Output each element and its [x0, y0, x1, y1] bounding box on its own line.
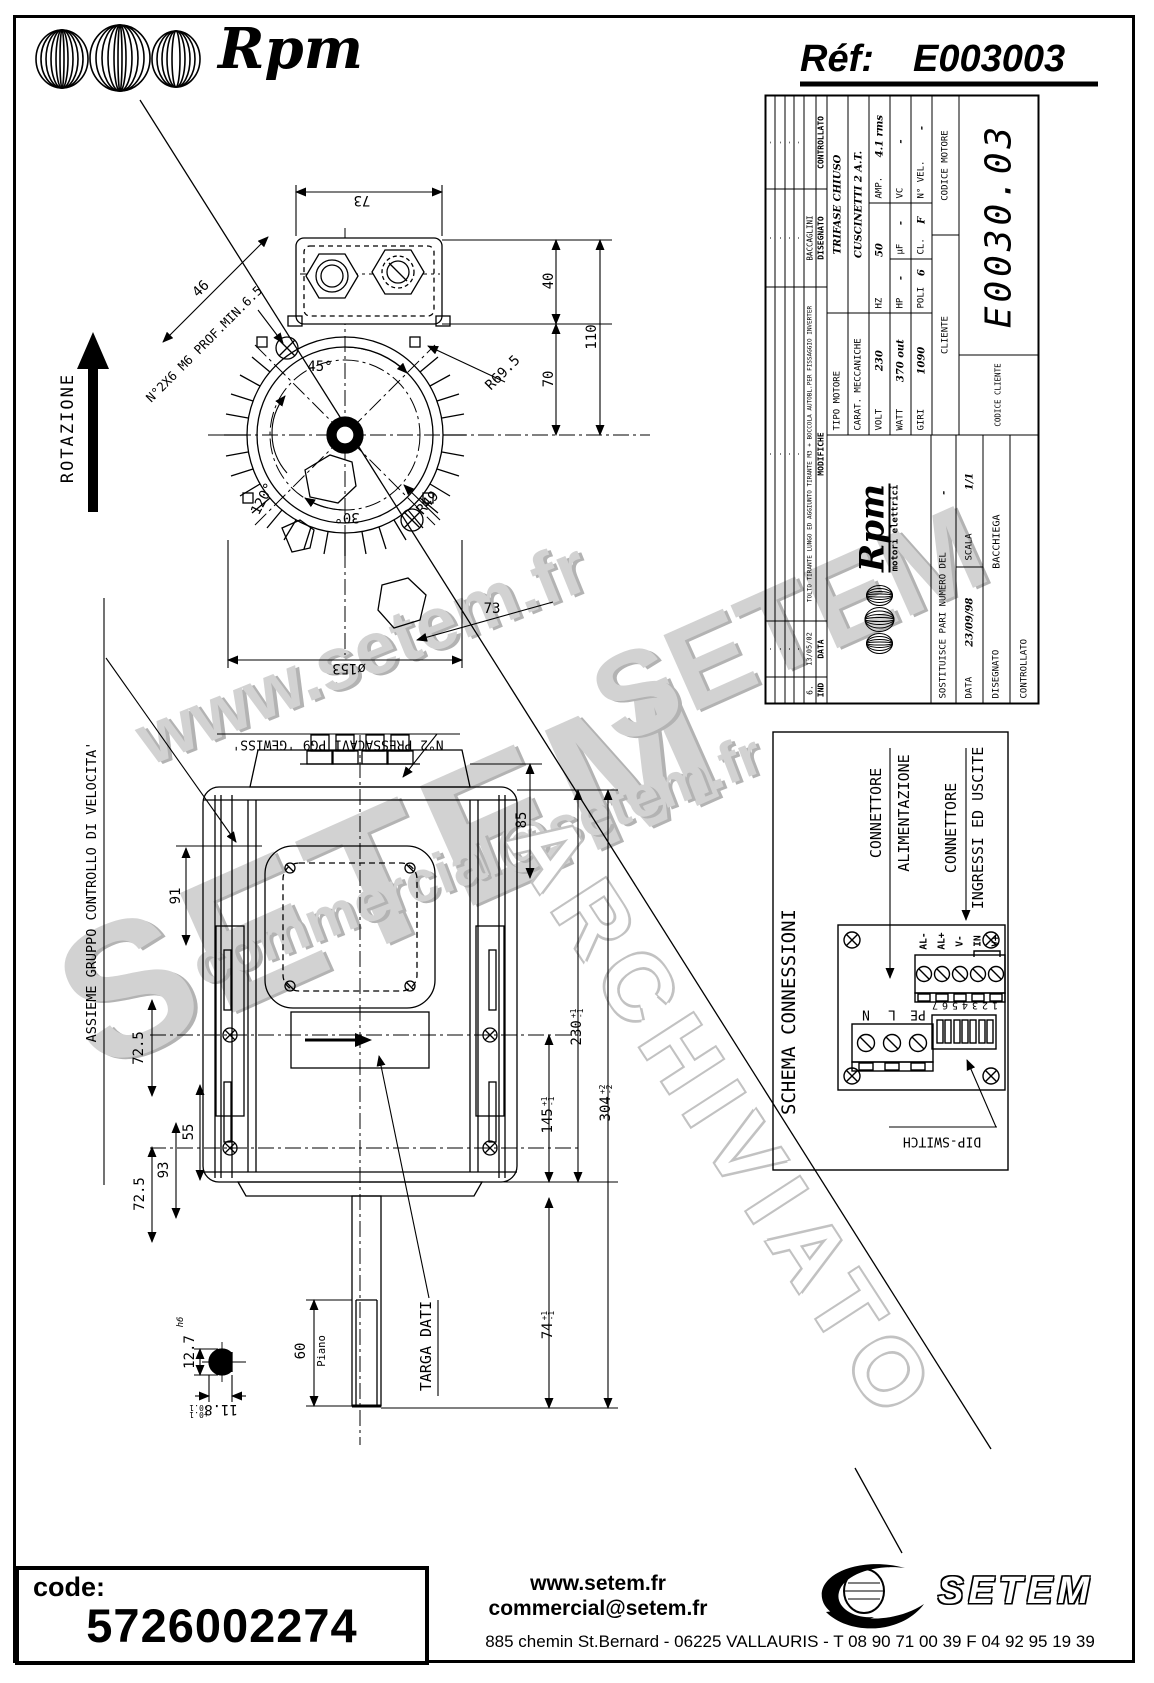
- volt-hz-amp-row: VOLT230 HZ50 AMP.4.1 rms: [870, 97, 891, 435]
- io-terminal-v-minus: V-: [955, 935, 966, 946]
- dim-60: 60: [293, 1343, 309, 1360]
- carat-row: CARAT. MECCANICHE CUSCINETTI 2 A.T.: [849, 97, 870, 435]
- tol-h6: h6: [176, 1317, 186, 1328]
- dim-72-5-b: 72.5: [132, 1177, 148, 1211]
- conn-io-line1: CONNETTORE: [942, 783, 960, 873]
- piano-label: Piano: [316, 1335, 328, 1367]
- dim-12-7: 12.7: [182, 1335, 198, 1369]
- dim-91: 91: [168, 888, 184, 905]
- mod-row: - - - -: [785, 97, 794, 703]
- controllato-row: CONTROLLATO: [1011, 436, 1038, 703]
- power-terminal-pe: PE: [910, 1007, 926, 1022]
- title-block-left: Rpm motori elettrici SOSTITUISCE PARI NU…: [828, 435, 1038, 703]
- footer-brand: SETEM: [938, 1570, 1094, 1613]
- dip-switch-label: DIP-SWITCH: [903, 1134, 981, 1149]
- conn-alim-line2: ALIMENTAZIONE: [895, 754, 913, 871]
- power-terminal-l: L: [888, 1007, 896, 1022]
- giri-poli-cl-nvel-row: GIRI1090 POLI6 CL.F N° VEL.-: [912, 97, 933, 435]
- disegnato-row: DISEGNATO BACCHIEGA: [984, 436, 1011, 703]
- mod-header-row: IND DATA MODIFICHE DISEGNATO CONTROLLATO: [816, 97, 827, 703]
- cliente-row: CLIENTE CODICE MOTORE: [933, 97, 960, 435]
- io-terminal-al-minus: AL-: [919, 932, 930, 949]
- sostituisce-row: SOSTITUISCE PARI NUMERO DEL -: [932, 436, 957, 703]
- footer-email: commercial@setem.fr: [448, 1597, 748, 1621]
- io-terminal-in: IN: [973, 935, 984, 946]
- dim-73-top: 73: [354, 192, 371, 208]
- rpm-logo-coils: [36, 25, 200, 91]
- mod-row: - - - -: [776, 97, 785, 703]
- tb-logo-sub: motori elettrici: [890, 485, 900, 572]
- dim-55: 55: [181, 1124, 197, 1141]
- dim-dia-153: ø153: [332, 660, 366, 676]
- tol-11-8: +0.1-0.1: [189, 1404, 208, 1418]
- mod-row: - - - -: [767, 97, 776, 703]
- codice-motore-value: E0030.03: [960, 97, 1038, 355]
- end-view: [77, 185, 650, 668]
- dim-11-8: 11.8: [204, 1401, 238, 1417]
- footer-site: www.setem.fr: [448, 1572, 748, 1596]
- dim-73-bottom: 73: [484, 601, 501, 617]
- dim-93: 93: [156, 1162, 172, 1179]
- dim-70: 70: [541, 371, 557, 388]
- rpm-logo-text: Rpm: [218, 16, 363, 82]
- title-block-logo: Rpm motori elettrici: [828, 436, 932, 703]
- conn-io-line2: INGRESSI ED USCITE: [969, 747, 987, 910]
- title-block: - - - - - - - - - - - - - - - - 6. 13: [765, 95, 1040, 705]
- dim-145: 145 +1-1: [540, 1097, 556, 1134]
- drawing-sheet: www.setem.fr SETEM commercial@setem.fr S…: [0, 0, 1154, 1683]
- angle-30: 30°: [334, 509, 359, 525]
- dim-110: 110: [584, 324, 600, 349]
- data-scala-row: DATA 23/09/98 SCALA 1/1: [957, 436, 984, 703]
- ref-label: Réf:: [800, 38, 874, 81]
- dim-304: 304 +2-2: [598, 1085, 614, 1122]
- code-value: 5726002274: [19, 1598, 425, 1653]
- dim-85: 85: [514, 812, 530, 829]
- mod-row: - - - -: [795, 97, 804, 703]
- io-terminal-al-plus: AL+: [937, 932, 948, 949]
- dim-40: 40: [541, 273, 557, 290]
- dim-230: 230 +1-1: [569, 1009, 585, 1046]
- schema-title: SCHEMA CONNESSIONI: [778, 909, 800, 1115]
- tipo-motore-row: TIPO MOTORE TRIFASE CHIUSO: [828, 97, 849, 435]
- targa-dati-label: TARGA DATI: [417, 1301, 435, 1391]
- io-terminal-v-plus: V+: [991, 935, 1002, 946]
- rpm-logo-coils-small: [864, 582, 894, 654]
- pressacavi-label: N°2 PRESSACAVI PG9 'GEWISS': [232, 737, 443, 752]
- tb-logo-brand: Rpm: [858, 484, 891, 572]
- footer-address: 885 chemin St.Bernard - 06225 VALLAURIS …: [455, 1632, 1125, 1652]
- title-block-right: TIPO MOTORE TRIFASE CHIUSO CARAT. MECCAN…: [828, 97, 1038, 435]
- ref-value: E003003: [913, 38, 1065, 81]
- setem-logo: [822, 1564, 924, 1628]
- dim-74: 74 +1-1: [540, 1311, 556, 1340]
- codice-row: CODICE CLIENTE E0030.03: [960, 97, 1038, 435]
- dim-72-5-a: 72.5: [131, 1031, 147, 1065]
- conn-alim-line1: CONNETTORE: [867, 768, 885, 858]
- dip-switch-numbers: 1234567: [928, 1000, 998, 1011]
- angle-45: 45°: [307, 359, 332, 375]
- code-box: code: 5726002274: [15, 1566, 429, 1665]
- power-terminal-n: N: [862, 1007, 870, 1022]
- rotation-label: ROTAZIONE: [58, 373, 78, 483]
- mod-row-6: 6. 13/05/02 TOLTO TIRANTE LUNGO ED AGGIU…: [804, 97, 816, 703]
- watt-hp-uf-vc-row: WATT370 out HP- µF- VC-: [891, 97, 912, 435]
- assieme-label: ASSIEME GRUPPO CONTROLLO DI VELOCITA': [84, 742, 100, 1043]
